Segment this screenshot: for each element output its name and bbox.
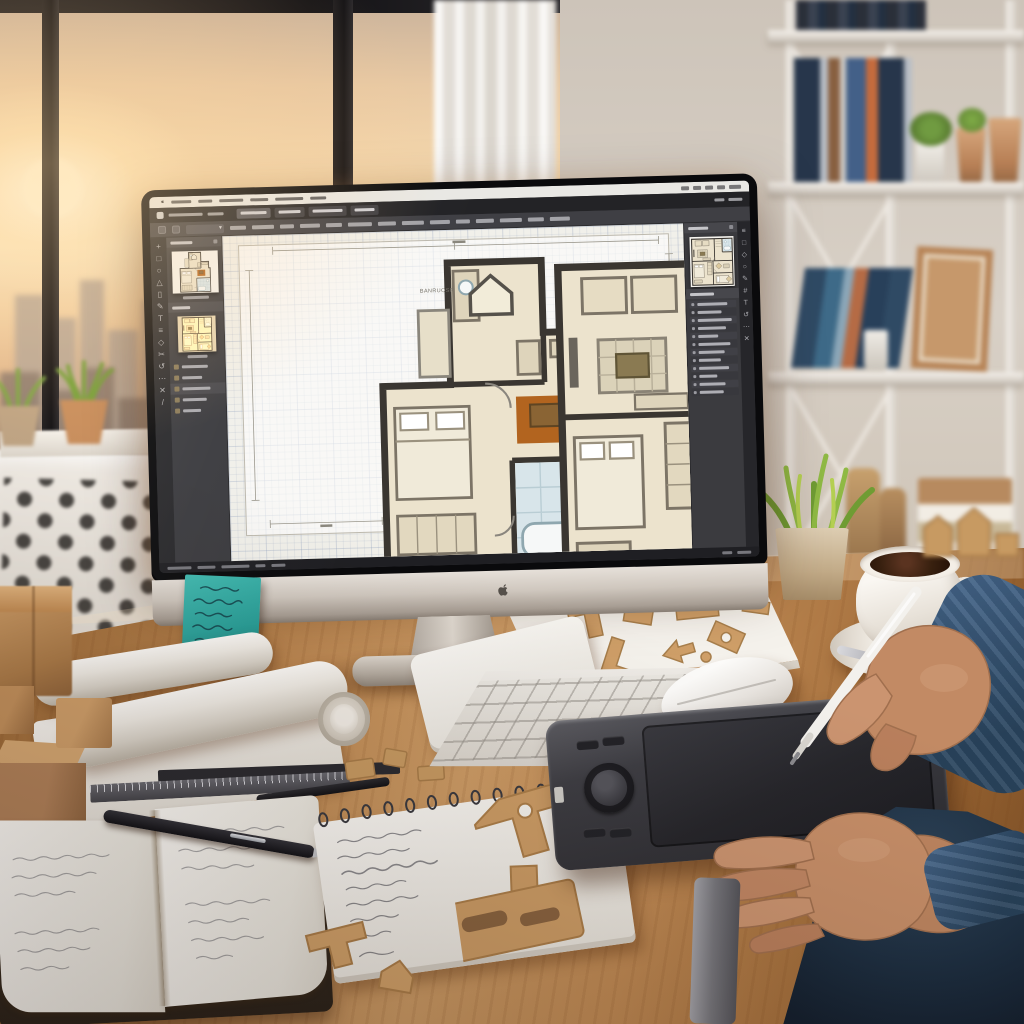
layer-row[interactable] bbox=[690, 340, 737, 348]
open-notebook bbox=[0, 787, 336, 1024]
plant-pot-white bbox=[916, 140, 944, 182]
ellipse-tool-icon[interactable]: ○ bbox=[157, 266, 162, 277]
layer-label bbox=[700, 391, 724, 394]
toolbar-button[interactable] bbox=[456, 219, 470, 223]
layer-label bbox=[698, 326, 726, 329]
tab-label bbox=[355, 208, 375, 212]
layer-icon bbox=[691, 303, 694, 306]
triangle-tool-icon[interactable]: △ bbox=[156, 278, 162, 289]
layer-label bbox=[699, 350, 725, 353]
loose-wood-pieces bbox=[288, 916, 468, 1024]
plan-thumbnail-2[interactable] bbox=[177, 315, 216, 352]
text-tool-icon[interactable]: T bbox=[158, 314, 163, 325]
layer-label bbox=[699, 366, 729, 369]
monitor-bezel: ▾ +□○△▯✎T≡◇✂↺⋯✕/ bbox=[141, 173, 768, 582]
layer-row[interactable] bbox=[690, 324, 737, 332]
document-tab[interactable] bbox=[274, 206, 304, 217]
menubar-status-icon[interactable] bbox=[693, 185, 701, 189]
layer-icon bbox=[693, 351, 696, 354]
books-row-2 bbox=[794, 58, 912, 182]
grid-panel-icon[interactable]: # bbox=[743, 287, 747, 297]
row-label bbox=[182, 365, 208, 369]
menu-item[interactable] bbox=[198, 199, 212, 202]
toolbar-button[interactable] bbox=[230, 226, 246, 230]
layer-row[interactable] bbox=[690, 332, 737, 340]
layer-label bbox=[700, 382, 726, 385]
assets-panel-icon[interactable]: ◇ bbox=[742, 251, 748, 261]
left-panel-subheader[interactable] bbox=[168, 301, 223, 313]
window-title bbox=[169, 212, 224, 217]
tab-label bbox=[313, 209, 343, 213]
row-icon bbox=[174, 364, 179, 369]
layer-row[interactable] bbox=[692, 388, 739, 396]
layer-label bbox=[698, 335, 718, 338]
styles-panel-icon[interactable]: ○ bbox=[743, 263, 748, 273]
toolbar-dropdown[interactable]: ▾ bbox=[186, 224, 224, 234]
titlebar-right bbox=[714, 198, 742, 202]
row-label bbox=[183, 398, 207, 402]
polygon-tool-icon[interactable]: ◇ bbox=[158, 338, 164, 349]
picture-frame bbox=[911, 246, 993, 372]
left-panel-row[interactable] bbox=[171, 404, 226, 417]
tablet-express-key bbox=[609, 827, 632, 838]
layer-icon bbox=[692, 319, 695, 322]
menu-items bbox=[171, 196, 326, 203]
row-label bbox=[183, 409, 201, 413]
toolbar-button[interactable] bbox=[402, 221, 424, 226]
toolbar-button[interactable] bbox=[430, 220, 450, 225]
row-label bbox=[182, 376, 202, 380]
history-panel-icon[interactable]: ↺ bbox=[743, 311, 749, 321]
layer-label bbox=[699, 375, 717, 378]
layer-icon bbox=[692, 335, 695, 338]
plan-thumbnail-1[interactable] bbox=[171, 250, 218, 293]
text-panel-icon[interactable]: T bbox=[744, 299, 749, 309]
select-tool-icon[interactable]: □ bbox=[156, 254, 161, 265]
row-label bbox=[182, 387, 210, 391]
menubar-status-icon[interactable] bbox=[705, 185, 713, 189]
apple-menu-icon[interactable] bbox=[157, 198, 164, 206]
tablet-port bbox=[554, 787, 564, 804]
plant-pot-small bbox=[864, 330, 888, 370]
layer-row[interactable] bbox=[691, 356, 738, 364]
pen-tool-icon[interactable]: ✎ bbox=[157, 302, 164, 313]
layers-list bbox=[686, 298, 742, 398]
row-icon bbox=[175, 408, 180, 413]
status-item bbox=[255, 564, 265, 567]
layer-label bbox=[697, 302, 727, 305]
cardboard-box bbox=[0, 586, 72, 696]
status-item bbox=[722, 551, 732, 554]
layer-label bbox=[698, 342, 730, 345]
layers-tool-icon[interactable]: ≡ bbox=[158, 326, 163, 337]
sill-plant bbox=[0, 358, 52, 450]
layer-icon bbox=[693, 375, 696, 378]
right-panel-header[interactable] bbox=[684, 222, 737, 233]
thumbnail-caption bbox=[182, 296, 208, 300]
window-title-text bbox=[208, 212, 224, 215]
sill-plant bbox=[46, 348, 122, 448]
toolbar-button[interactable] bbox=[348, 222, 372, 227]
menu-item[interactable] bbox=[171, 200, 191, 204]
status-item bbox=[737, 550, 751, 553]
left-panel-list bbox=[170, 360, 227, 417]
layer-row[interactable] bbox=[691, 372, 738, 380]
layer-icon bbox=[691, 311, 694, 314]
wooden-block bbox=[56, 698, 112, 748]
floor-plan-drawing bbox=[222, 223, 692, 561]
toolbar-icon[interactable] bbox=[172, 225, 180, 233]
titlebar-text bbox=[714, 198, 724, 201]
toolbar-button[interactable] bbox=[550, 217, 570, 222]
tablet-express-key bbox=[602, 736, 625, 747]
layer-icon bbox=[692, 343, 695, 346]
tab-label bbox=[241, 211, 267, 215]
books-row-top bbox=[796, 0, 926, 30]
layer-icon bbox=[693, 359, 696, 362]
layer-icon bbox=[694, 391, 697, 394]
layer-row[interactable] bbox=[690, 316, 737, 324]
row-icon bbox=[175, 397, 180, 402]
menubar-status-icon[interactable] bbox=[717, 185, 725, 189]
status-item bbox=[221, 564, 249, 568]
shelf-board bbox=[768, 30, 1024, 43]
erase-tool-icon[interactable]: ✕ bbox=[159, 386, 166, 397]
layer-label bbox=[698, 318, 732, 321]
layer-label bbox=[699, 359, 721, 362]
document-tab[interactable] bbox=[350, 204, 378, 215]
more-tools-icon[interactable]: ⋯ bbox=[158, 374, 166, 385]
document-tab[interactable] bbox=[308, 205, 346, 216]
wall-tool-icon[interactable]: ▯ bbox=[157, 290, 162, 301]
plan-preview-thumbnail[interactable] bbox=[689, 236, 734, 287]
status-item bbox=[197, 565, 215, 569]
layer-icon bbox=[693, 367, 696, 370]
books-leaning bbox=[791, 268, 913, 368]
wooden-block bbox=[0, 686, 34, 734]
menu-item[interactable] bbox=[219, 199, 243, 203]
tablet-express-key bbox=[576, 740, 599, 751]
pages-panel-icon[interactable]: □ bbox=[742, 239, 747, 249]
menubar-status-icon[interactable] bbox=[729, 184, 741, 188]
menu-item[interactable] bbox=[310, 196, 326, 199]
layer-row[interactable] bbox=[691, 348, 738, 356]
toolbar-button[interactable] bbox=[252, 225, 274, 230]
more-panel-icon[interactable]: ⋯ bbox=[743, 323, 750, 333]
row-icon bbox=[174, 386, 179, 391]
cad-application-window: ▾ +□○△▯✎T≡◇✂↺⋯✕/ bbox=[149, 180, 759, 573]
layers-panel-icon[interactable]: ≡ bbox=[742, 227, 746, 237]
close-panel-icon[interactable]: ✕ bbox=[744, 335, 750, 345]
shelf-board bbox=[768, 182, 1024, 195]
desk-leg bbox=[689, 877, 740, 1024]
apple-logo bbox=[484, 578, 511, 611]
trim-tool-icon[interactable]: ✂ bbox=[158, 350, 165, 361]
wooden-house-models bbox=[916, 496, 1024, 560]
layer-icon bbox=[694, 383, 697, 386]
status-item bbox=[167, 566, 191, 570]
left-panel-header[interactable] bbox=[166, 236, 221, 248]
menu-item[interactable] bbox=[250, 198, 268, 202]
titlebar-text bbox=[728, 198, 742, 201]
layer-icon bbox=[692, 327, 695, 330]
menubar-status-icons bbox=[681, 184, 741, 190]
layer-row[interactable] bbox=[691, 380, 738, 388]
row-icon bbox=[174, 375, 179, 380]
shelf-plant bbox=[910, 112, 952, 146]
app-icon[interactable] bbox=[157, 212, 164, 219]
thumbnail-caption bbox=[187, 355, 207, 359]
toolbar-button[interactable] bbox=[378, 221, 396, 226]
menubar-status-icon[interactable] bbox=[681, 186, 689, 190]
shelf-plant-small bbox=[958, 108, 986, 132]
tablet-dial bbox=[582, 761, 636, 815]
move-tool-icon[interactable]: + bbox=[156, 242, 161, 253]
document-tabs bbox=[236, 204, 378, 218]
toolbar-button[interactable] bbox=[326, 223, 342, 227]
rotate-tool-icon[interactable]: ↺ bbox=[158, 362, 165, 373]
layer-label bbox=[698, 311, 722, 314]
layer-row[interactable] bbox=[689, 308, 736, 316]
menu-item[interactable] bbox=[275, 197, 303, 201]
drawing-canvas[interactable]: BANRUOSR bbox=[222, 223, 692, 561]
toolbar-button[interactable] bbox=[476, 219, 494, 224]
shelf-board bbox=[768, 372, 1024, 385]
toolbar-button[interactable] bbox=[280, 224, 294, 228]
architect-workspace-photo: ▾ +□○△▯✎T≡◇✂↺⋯✕/ bbox=[0, 0, 1024, 1024]
annotate-panel-icon[interactable]: ✎ bbox=[742, 275, 748, 285]
tab-label bbox=[279, 210, 301, 214]
window-title-text bbox=[169, 213, 203, 217]
status-item bbox=[271, 563, 285, 566]
left-panel bbox=[166, 236, 231, 562]
toolbar-button[interactable] bbox=[500, 218, 522, 223]
toolbar-icon[interactable] bbox=[158, 226, 166, 234]
layer-row[interactable] bbox=[689, 300, 736, 308]
canvas-room-label: BANRUOSR bbox=[420, 288, 455, 295]
right-panel bbox=[683, 222, 746, 548]
toolbar-button[interactable] bbox=[528, 217, 544, 221]
tablet-express-key bbox=[583, 827, 606, 838]
toolbar-button[interactable] bbox=[300, 223, 320, 228]
layer-row[interactable] bbox=[691, 364, 738, 372]
document-tab[interactable] bbox=[236, 207, 270, 218]
hand-holding-stylus bbox=[748, 586, 1018, 801]
measure-tool-icon[interactable]: / bbox=[162, 398, 165, 409]
